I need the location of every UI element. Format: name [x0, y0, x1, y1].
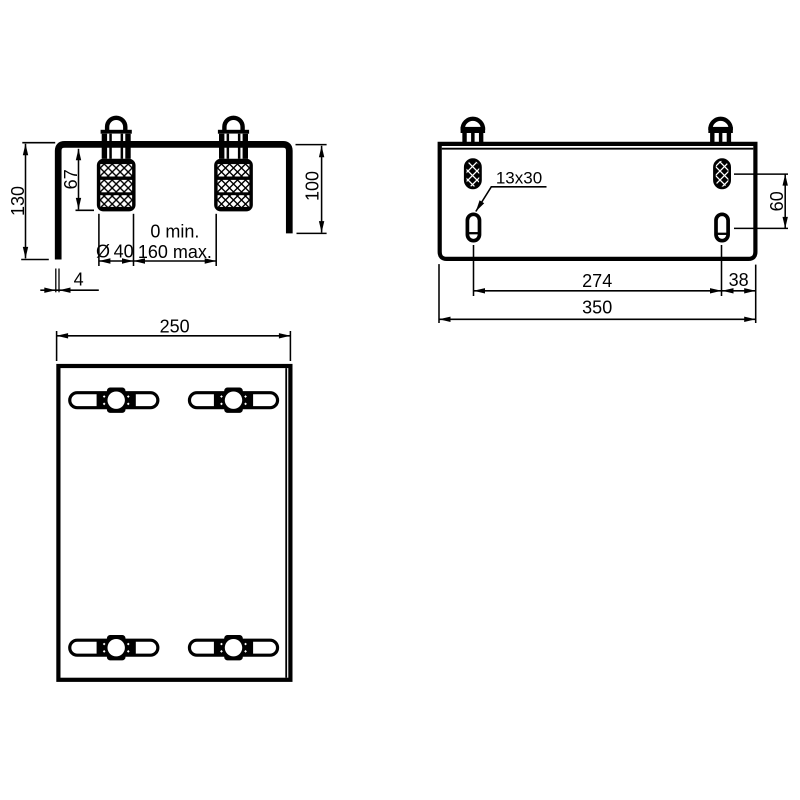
- svg-text:0 min.: 0 min.: [150, 222, 199, 242]
- svg-text:4: 4: [74, 270, 84, 290]
- svg-text:Ø 40: Ø 40: [96, 242, 134, 262]
- svg-text:60: 60: [767, 191, 787, 211]
- svg-text:38: 38: [729, 270, 749, 290]
- svg-text:350: 350: [582, 297, 612, 317]
- svg-text:13x30: 13x30: [496, 168, 542, 187]
- svg-text:274: 274: [582, 271, 612, 291]
- svg-text:160 max.: 160 max.: [138, 242, 212, 262]
- svg-text:100: 100: [303, 171, 323, 201]
- svg-text:130: 130: [8, 186, 28, 216]
- svg-text:250: 250: [160, 316, 190, 336]
- svg-text:67: 67: [61, 169, 81, 189]
